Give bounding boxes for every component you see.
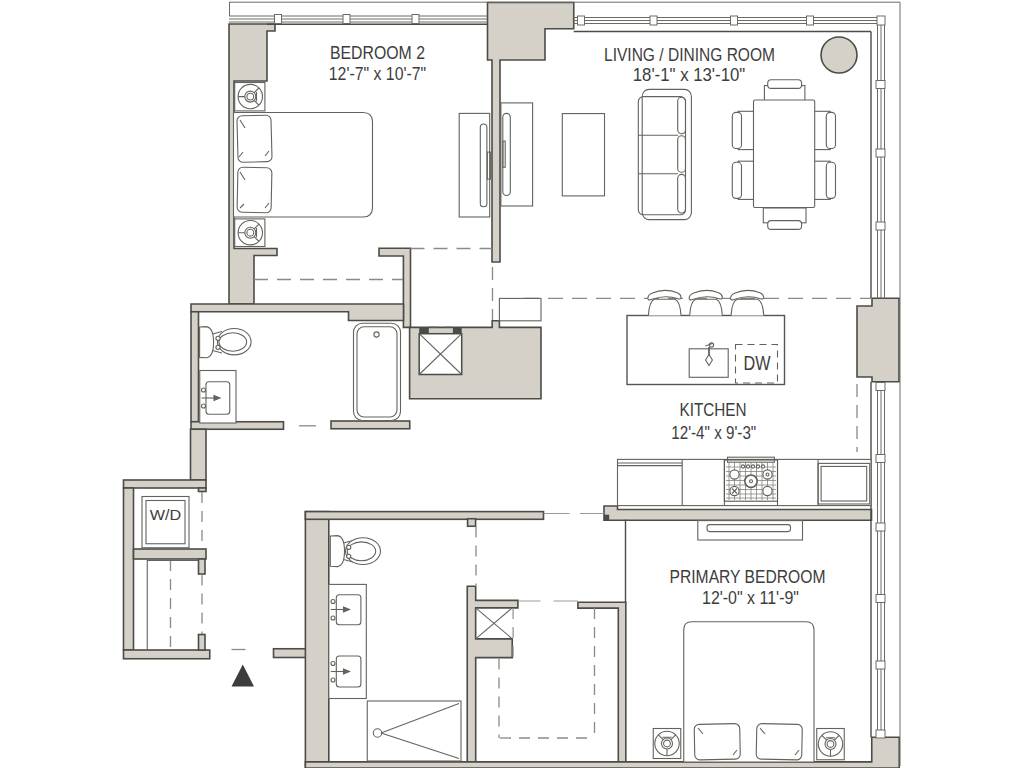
svg-text:18'-1" x 13'-10": 18'-1" x 13'-10" [633, 64, 746, 85]
svg-text:12'-7" x 10'-7": 12'-7" x 10'-7" [329, 63, 427, 84]
svg-text:W/D: W/D [150, 507, 182, 523]
svg-text:LIVING / DINING ROOM: LIVING / DINING ROOM [604, 44, 775, 65]
svg-text:12'-4" x 9'-3": 12'-4" x 9'-3" [671, 422, 756, 443]
svg-text:12'-0" x 11'-9": 12'-0" x 11'-9" [702, 587, 799, 608]
svg-text:DW: DW [744, 351, 771, 374]
svg-text:KITCHEN: KITCHEN [680, 399, 747, 420]
svg-text:PRIMARY BEDROOM: PRIMARY BEDROOM [670, 566, 826, 587]
svg-text:BEDROOM 2: BEDROOM 2 [330, 42, 425, 63]
